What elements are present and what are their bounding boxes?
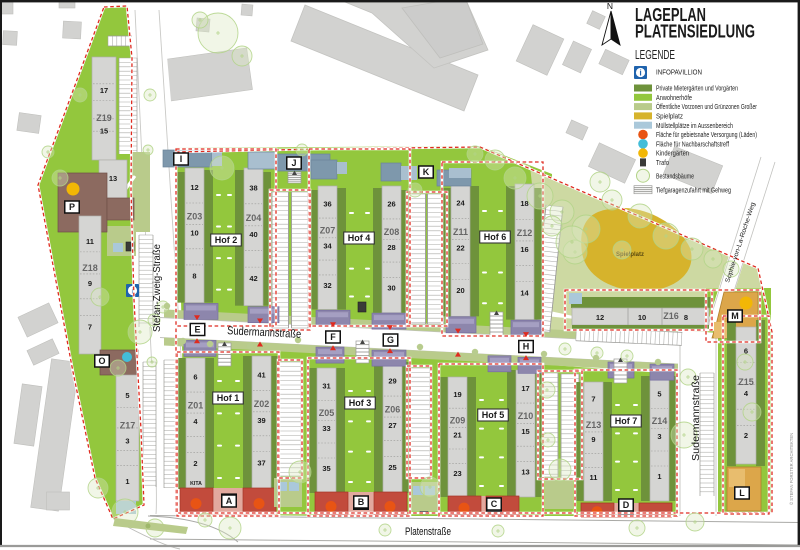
svg-text:Hof 4: Hof 4 [348, 233, 371, 243]
svg-text:22: 22 [456, 244, 464, 253]
svg-text:Z15: Z15 [738, 377, 754, 387]
svg-text:1: 1 [657, 472, 661, 481]
svg-text:21: 21 [453, 431, 461, 440]
svg-text:31: 31 [322, 382, 330, 391]
svg-text:1: 1 [125, 477, 129, 486]
svg-text:14: 14 [520, 288, 529, 297]
svg-text:17: 17 [100, 86, 108, 95]
svg-text:9: 9 [591, 435, 595, 444]
svg-text:i: i [639, 67, 641, 77]
svg-text:7: 7 [88, 322, 92, 331]
svg-text:Fläche für gebietsnahe Versorg: Fläche für gebietsnahe Versorgung (Läden… [656, 130, 757, 139]
svg-text:Z11: Z11 [453, 227, 468, 237]
svg-text:26: 26 [387, 200, 395, 209]
svg-text:Spielplatz: Spielplatz [656, 112, 683, 121]
svg-text:Z14: Z14 [652, 416, 668, 426]
svg-text:Trafo: Trafo [656, 158, 669, 167]
svg-text:16: 16 [520, 245, 528, 254]
svg-text:40: 40 [249, 230, 257, 239]
svg-text:2: 2 [744, 431, 748, 440]
svg-text:32: 32 [323, 281, 331, 290]
svg-text:Z06: Z06 [385, 404, 401, 414]
svg-text:3: 3 [125, 437, 129, 446]
svg-text:10: 10 [190, 229, 198, 238]
svg-text:J: J [291, 158, 296, 168]
svg-text:Hof 6: Hof 6 [484, 232, 507, 242]
svg-text:25: 25 [388, 463, 396, 472]
svg-text:8: 8 [192, 272, 196, 281]
svg-text:13: 13 [521, 468, 529, 477]
svg-text:Z09: Z09 [450, 415, 466, 425]
svg-text:F: F [330, 332, 336, 342]
svg-text:Z17: Z17 [120, 421, 136, 431]
svg-text:M: M [731, 311, 739, 321]
svg-text:Anwohnerhöfe: Anwohnerhöfe [656, 93, 692, 102]
svg-text:35: 35 [322, 464, 330, 473]
svg-text:10: 10 [638, 313, 646, 322]
svg-text:13: 13 [109, 174, 117, 183]
svg-text:Z02: Z02 [254, 399, 270, 409]
svg-text:39: 39 [257, 416, 265, 425]
svg-text:36: 36 [323, 199, 331, 208]
svg-text:PLATENSIEDLUNG: PLATENSIEDLUNG [635, 22, 755, 42]
svg-text:Z12: Z12 [517, 228, 533, 238]
svg-text:2: 2 [193, 459, 197, 468]
svg-text:Hof 3: Hof 3 [349, 398, 372, 408]
svg-text:Z07: Z07 [320, 226, 336, 236]
svg-text:Fläche für Nachbarschaftstreff: Fläche für Nachbarschaftstreff [656, 139, 730, 148]
svg-text:Bestandsbäume: Bestandsbäume [656, 171, 694, 180]
svg-text:Private Mietergärten und Vorgä: Private Mietergärten und Vorgärten [656, 84, 738, 93]
svg-text:Platenstraße: Platenstraße [405, 526, 451, 538]
svg-text:Z08: Z08 [384, 227, 400, 237]
svg-text:Z05: Z05 [319, 408, 335, 418]
svg-text:Stefan-Zweig-Straße: Stefan-Zweig-Straße [152, 244, 163, 332]
svg-text:28: 28 [387, 243, 395, 252]
svg-text:5: 5 [657, 390, 661, 399]
svg-text:K: K [423, 167, 430, 177]
svg-text:E: E [194, 325, 200, 335]
svg-text:Tiefgaragenzufahrt mit Gehweg: Tiefgaragenzufahrt mit Gehweg [656, 185, 731, 194]
svg-text:© STEFAN FORSTER ARCHITEKTEN: © STEFAN FORSTER ARCHITEKTEN [789, 433, 794, 505]
svg-text:Z19: Z19 [96, 113, 112, 123]
svg-text:20: 20 [456, 286, 464, 295]
svg-text:Z10: Z10 [518, 411, 534, 421]
svg-text:D: D [623, 500, 630, 510]
svg-text:B: B [358, 497, 365, 507]
svg-text:8: 8 [684, 313, 688, 322]
svg-text:Z01: Z01 [188, 400, 204, 410]
svg-text:27: 27 [388, 421, 396, 430]
svg-text:23: 23 [453, 469, 461, 478]
svg-text:O: O [98, 356, 105, 366]
svg-text:7: 7 [591, 395, 595, 404]
svg-text:6: 6 [193, 372, 197, 381]
svg-text:Hof 7: Hof 7 [615, 416, 638, 426]
svg-text:A: A [226, 496, 233, 506]
svg-text:38: 38 [249, 183, 257, 192]
svg-text:N: N [607, 1, 613, 11]
svg-text:37: 37 [257, 458, 265, 467]
svg-text:12: 12 [190, 183, 198, 192]
svg-text:C: C [491, 499, 498, 509]
svg-text:LEGENDE: LEGENDE [635, 48, 675, 62]
svg-text:12: 12 [596, 313, 604, 322]
svg-text:9: 9 [88, 279, 92, 288]
svg-text:L: L [739, 488, 745, 498]
svg-text:INFOPAVILLION: INFOPAVILLION [656, 68, 702, 77]
svg-text:17: 17 [521, 384, 529, 393]
svg-text:P: P [69, 202, 75, 212]
svg-text:41: 41 [257, 371, 265, 380]
svg-text:24: 24 [456, 199, 465, 208]
svg-text:34: 34 [323, 241, 332, 250]
svg-text:15: 15 [100, 127, 108, 136]
svg-text:3: 3 [657, 432, 661, 441]
svg-text:Kindergärten: Kindergärten [656, 149, 689, 158]
svg-text:Hof 2: Hof 2 [215, 235, 238, 245]
svg-text:11: 11 [86, 237, 94, 246]
svg-text:Z18: Z18 [82, 263, 98, 273]
svg-text:42: 42 [249, 274, 257, 283]
svg-text:Hof 1: Hof 1 [217, 393, 240, 403]
svg-text:Öffentliche Vorzonen und Grünz: Öffentliche Vorzonen und Grünzonen Große… [656, 102, 757, 111]
svg-text:30: 30 [387, 283, 395, 292]
svg-text:5: 5 [125, 391, 129, 400]
svg-text:Z13: Z13 [586, 420, 602, 430]
svg-text:15: 15 [521, 427, 529, 436]
svg-text:Z03: Z03 [187, 212, 203, 222]
svg-text:33: 33 [322, 424, 330, 433]
svg-text:H: H [523, 342, 530, 352]
svg-text:19: 19 [453, 390, 461, 399]
svg-text:I: I [180, 154, 183, 164]
svg-text:Z16: Z16 [663, 311, 679, 321]
svg-text:Hof 5: Hof 5 [482, 410, 505, 420]
svg-text:11: 11 [590, 473, 598, 482]
svg-text:Z04: Z04 [246, 213, 262, 223]
svg-text:KITA: KITA [190, 481, 202, 487]
svg-text:Sudermannstraße: Sudermannstraße [690, 375, 702, 461]
svg-text:G: G [387, 335, 394, 345]
svg-text:Müllstellplätze im Aussenberei: Müllstellplätze im Aussenbereich [656, 121, 733, 130]
svg-text:29: 29 [388, 376, 396, 385]
